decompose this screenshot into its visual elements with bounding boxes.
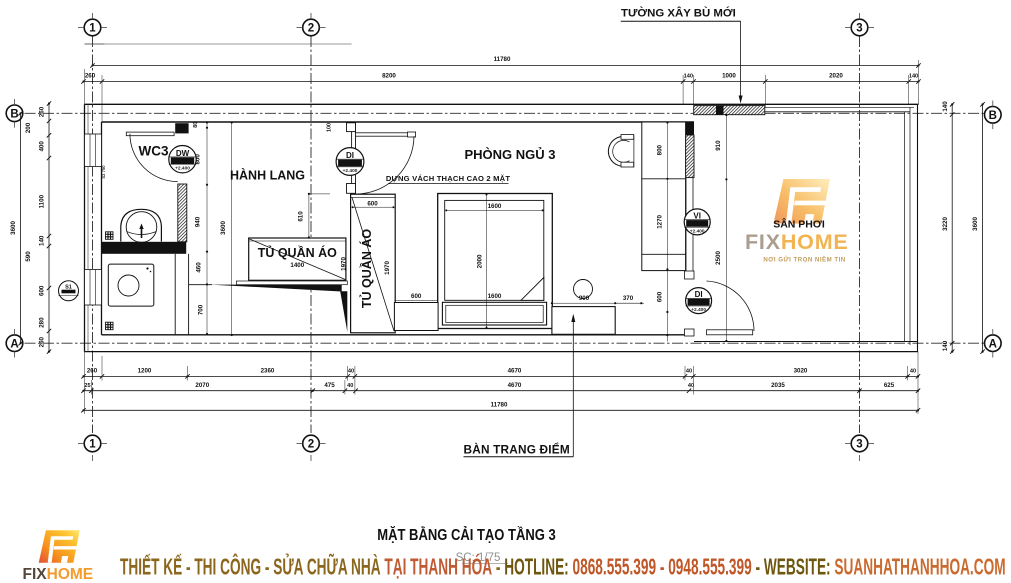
svg-text:140: 140 — [942, 101, 949, 112]
svg-text:BÀN TRANG ĐIỂM: BÀN TRANG ĐIỂM — [464, 443, 570, 457]
svg-text:TỦ QUẦN ÁO: TỦ QUẦN ÁO — [359, 229, 374, 308]
svg-text:600: 600 — [39, 285, 46, 296]
svg-text:370: 370 — [623, 295, 634, 302]
svg-text:11780: 11780 — [491, 402, 508, 409]
svg-text:1000: 1000 — [722, 73, 736, 80]
svg-text:260: 260 — [85, 73, 96, 80]
svg-text:140: 140 — [39, 235, 46, 246]
svg-text:1270: 1270 — [657, 214, 664, 228]
svg-text:1200: 1200 — [138, 368, 152, 375]
svg-text:3600: 3600 — [220, 221, 227, 235]
svg-text:260: 260 — [87, 368, 98, 375]
svg-text:600: 600 — [657, 291, 664, 302]
svg-text:260: 260 — [39, 106, 46, 117]
svg-text:940: 940 — [195, 216, 202, 227]
svg-text:SÂN PHƠI: SÂN PHƠI — [773, 218, 825, 231]
svg-text:40: 40 — [686, 369, 692, 375]
svg-text:3600: 3600 — [10, 221, 17, 235]
svg-text:2070: 2070 — [195, 382, 209, 389]
svg-text:A: A — [10, 338, 18, 350]
svg-text:140: 140 — [942, 340, 949, 351]
svg-text:590: 590 — [25, 251, 32, 262]
svg-text:FIXHOME: FIXHOME — [23, 566, 94, 583]
svg-text:140: 140 — [909, 74, 918, 80]
svg-text:B: B — [989, 110, 997, 122]
svg-text:400: 400 — [39, 141, 46, 152]
svg-text:1400: 1400 — [290, 262, 304, 269]
svg-text:NƠI GỬI TRỌN NIỀM TIN: NƠI GỬI TRỌN NIỀM TIN — [763, 257, 845, 264]
svg-text:2000: 2000 — [476, 254, 483, 268]
svg-text:2020: 2020 — [829, 73, 843, 80]
svg-text:+2.400: +2.400 — [690, 228, 705, 234]
svg-text:1970: 1970 — [384, 261, 391, 275]
svg-text:40: 40 — [688, 383, 694, 389]
svg-text:700: 700 — [198, 304, 205, 315]
svg-text:4670: 4670 — [508, 382, 522, 389]
svg-text:2: 2 — [308, 439, 314, 451]
svg-text:DỰNG VÁCH THẠCH CAO 2 MẶT: DỰNG VÁCH THẠCH CAO 2 MẶT — [386, 174, 511, 183]
svg-text:DW: DW — [176, 149, 190, 158]
svg-text:4670: 4670 — [508, 368, 522, 375]
svg-text:1100: 1100 — [39, 194, 46, 208]
svg-text:460: 460 — [196, 262, 203, 273]
svg-text:3020: 3020 — [794, 368, 808, 375]
svg-text:S2 750: S2 750 — [101, 165, 106, 179]
svg-text:MẶT BẰNG CẢI TẠO TẦNG 3: MẶT BẰNG CẢI TẠO TẦNG 3 — [377, 525, 555, 544]
svg-text:DI: DI — [346, 151, 354, 160]
svg-text:625: 625 — [884, 382, 895, 389]
svg-text:1970: 1970 — [341, 257, 348, 271]
svg-text:B: B — [10, 108, 18, 120]
svg-text:25: 25 — [84, 383, 90, 389]
svg-text:3: 3 — [856, 23, 862, 35]
svg-text:3600: 3600 — [972, 217, 979, 231]
svg-text:600: 600 — [411, 293, 422, 300]
svg-text:910: 910 — [715, 140, 722, 151]
svg-text:PHÒNG NGỦ 3: PHÒNG NGỦ 3 — [464, 147, 555, 162]
svg-text:DI: DI — [695, 290, 703, 299]
svg-text:1: 1 — [89, 439, 96, 451]
svg-text:FIXHOME: FIXHOME — [745, 230, 849, 254]
svg-text:260: 260 — [39, 336, 46, 347]
svg-text:A: A — [989, 338, 997, 350]
svg-text:900: 900 — [579, 295, 590, 302]
svg-text:600: 600 — [367, 200, 378, 207]
svg-text:HÀNH LANG: HÀNH LANG — [230, 168, 305, 183]
svg-text:1600: 1600 — [488, 293, 502, 300]
svg-text:1: 1 — [89, 23, 96, 35]
svg-text:100: 100 — [327, 123, 333, 132]
svg-text:40: 40 — [348, 369, 354, 375]
svg-text:475: 475 — [324, 382, 335, 389]
svg-text:2035: 2035 — [771, 382, 785, 389]
svg-text:VI: VI — [693, 212, 701, 221]
svg-text:3220: 3220 — [942, 217, 949, 231]
svg-text:THIẾT KẾ - THI CÔNG - SỬA: THIẾT KẾ - THI CÔNG - SỬA CHỮA NHÀ TẠI T… — [120, 554, 1006, 581]
svg-text:280: 280 — [39, 317, 46, 328]
svg-text:3: 3 — [856, 439, 862, 451]
svg-text:40: 40 — [347, 383, 353, 389]
svg-text:800: 800 — [657, 144, 664, 155]
svg-text:1600: 1600 — [488, 203, 502, 210]
svg-text:8200: 8200 — [382, 73, 396, 80]
svg-text:+2.400: +2.400 — [175, 166, 190, 172]
svg-text:40: 40 — [910, 369, 916, 375]
svg-text:S1: S1 — [65, 285, 72, 291]
svg-text:2: 2 — [308, 23, 314, 35]
svg-text:140: 140 — [684, 74, 693, 80]
svg-text:TƯỜNG XÂY BÙ MỚI: TƯỜNG XÂY BÙ MỚI — [621, 7, 736, 20]
svg-text:WC3: WC3 — [139, 144, 169, 159]
svg-text:11780: 11780 — [494, 56, 511, 63]
svg-text:+2.400: +2.400 — [691, 307, 706, 313]
svg-text:2500: 2500 — [715, 251, 722, 265]
svg-text:+2.400: +2.400 — [343, 168, 358, 174]
svg-text:TỦ QUẦN ÁO: TỦ QUẦN ÁO — [258, 245, 337, 260]
svg-text:2360: 2360 — [261, 368, 275, 375]
svg-text:200: 200 — [25, 122, 32, 133]
svg-text:80: 80 — [193, 122, 199, 128]
svg-text:610: 610 — [298, 211, 305, 222]
